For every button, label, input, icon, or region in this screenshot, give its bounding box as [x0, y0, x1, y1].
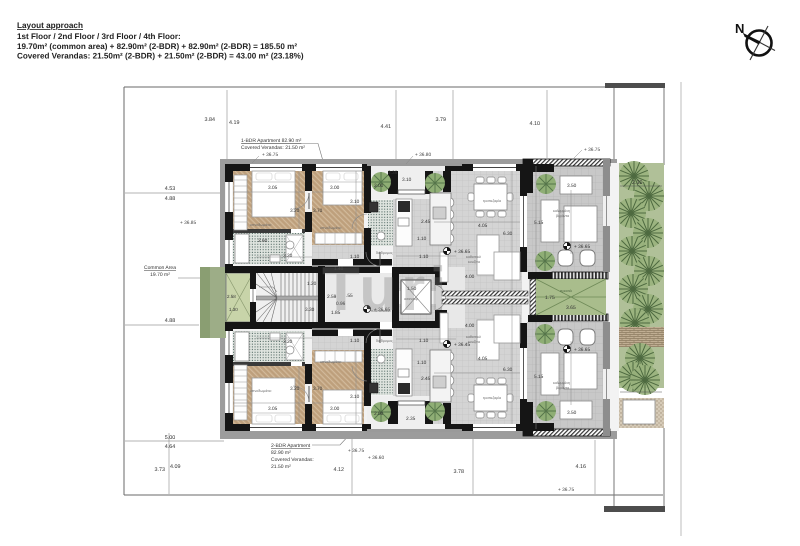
svg-text:Covered Verandas:: Covered Verandas: — [271, 457, 314, 463]
svg-text:2.45: 2.45 — [421, 219, 431, 225]
svg-text:1.10: 1.10 — [417, 360, 427, 366]
svg-text:2.00: 2.00 — [374, 183, 384, 189]
svg-text:3.20: 3.20 — [290, 386, 300, 392]
svg-text:1.10: 1.10 — [419, 338, 429, 344]
svg-text:4.88: 4.88 — [165, 318, 176, 324]
svg-text:3.05: 3.05 — [268, 185, 278, 191]
svg-text:Layout approach: Layout approach — [17, 21, 83, 30]
svg-text:4.05: 4.05 — [478, 356, 488, 362]
svg-text:3.50: 3.50 — [567, 410, 577, 416]
svg-text:+ 36.85: + 36.85 — [180, 220, 196, 226]
svg-text:βεράντα: βεράντα — [556, 386, 569, 390]
svg-text:Turi: Turi — [322, 255, 451, 324]
svg-text:+ 36.80: + 36.80 — [415, 152, 431, 158]
svg-text:1.20: 1.20 — [307, 281, 317, 287]
svg-text:3.10: 3.10 — [350, 199, 360, 205]
svg-text:3.10: 3.10 — [350, 394, 360, 400]
svg-text:2.00: 2.00 — [374, 411, 384, 417]
svg-text:Covered Verandas: 21.50m² (2-B: Covered Verandas: 21.50m² (2-BDR) + 21.5… — [17, 52, 304, 61]
svg-text:3.00: 3.00 — [330, 406, 340, 412]
svg-text:6.30: 6.30 — [503, 367, 513, 373]
svg-text:4.00: 4.00 — [465, 274, 475, 280]
svg-text:1.10: 1.10 — [350, 338, 360, 344]
svg-text:διάδρομος: διάδρομος — [376, 339, 393, 343]
svg-text:5.15: 5.15 — [534, 220, 544, 226]
svg-text:4.00: 4.00 — [465, 323, 475, 329]
svg-text:υπνοδωμάτιο: υπνοδωμάτιο — [250, 389, 271, 393]
svg-text:19.70m² (common area) + 82.90m: 19.70m² (common area) + 82.90m² (2-BDR) … — [17, 42, 297, 51]
svg-text:3.30: 3.30 — [305, 307, 315, 313]
svg-text:Covered Verandas: 21.50 m²: Covered Verandas: 21.50 m² — [241, 145, 305, 151]
svg-text:πρασιά: πρασιά — [560, 289, 572, 293]
svg-text:N: N — [735, 21, 744, 36]
svg-text:5.15: 5.15 — [534, 374, 544, 380]
svg-text:4.09: 4.09 — [170, 464, 181, 470]
svg-text:2.45: 2.45 — [421, 376, 431, 382]
svg-text:4.19: 4.19 — [229, 120, 240, 126]
svg-text:3.10: 3.10 — [402, 177, 412, 183]
svg-text:+ 36.65: + 36.65 — [574, 244, 590, 250]
svg-text:2.60: 2.60 — [258, 238, 268, 244]
svg-text:1.10: 1.10 — [417, 236, 427, 242]
svg-text:6.30: 6.30 — [503, 231, 513, 237]
svg-text:4.16: 4.16 — [576, 464, 587, 470]
svg-text:1st Floor / 2nd Floor / 3rd Fl: 1st Floor / 2nd Floor / 3rd Floor / 4th … — [17, 32, 181, 41]
svg-text:υπνοδωμάτιο: υπνοδωμάτιο — [320, 226, 341, 230]
svg-text:2.35: 2.35 — [406, 416, 416, 422]
svg-text:υπνοδωμάτιο: υπνοδωμάτιο — [320, 360, 341, 364]
svg-text:καλυμμένη: καλυμμένη — [553, 381, 570, 385]
svg-text:4.05: 4.05 — [478, 223, 488, 229]
svg-text:4.41: 4.41 — [381, 124, 392, 130]
svg-text:3.73: 3.73 — [155, 467, 166, 473]
svg-text:κουζίνα: κουζίνα — [468, 340, 480, 344]
svg-text:υπνοδωμάτιο: υπνοδωμάτιο — [250, 223, 271, 227]
svg-text:3.79: 3.79 — [436, 117, 447, 123]
svg-text:5.00: 5.00 — [165, 435, 176, 441]
svg-text:4.12: 4.12 — [334, 467, 345, 473]
svg-text:3.00: 3.00 — [330, 185, 340, 191]
svg-text:κουζίνα: κουζίνα — [468, 260, 480, 264]
svg-text:19.70 m²: 19.70 m² — [150, 272, 170, 278]
svg-text:1-BDR Apartment 82.90 m²: 1-BDR Apartment 82.90 m² — [241, 138, 302, 144]
svg-text:1.30: 1.30 — [229, 307, 238, 312]
svg-text:3.84: 3.84 — [205, 117, 216, 123]
svg-text:1.75: 1.75 — [545, 295, 555, 301]
svg-text:+ 36.75: + 36.75 — [584, 147, 600, 153]
svg-text:4.64: 4.64 — [165, 444, 176, 450]
svg-text:καθιστικό: καθιστικό — [466, 335, 481, 339]
svg-text:βεράντα: βεράντα — [556, 214, 569, 218]
svg-text:21.50 m²: 21.50 m² — [271, 464, 291, 470]
svg-text:3.20: 3.20 — [283, 339, 293, 345]
svg-text:3.20: 3.20 — [283, 253, 293, 259]
svg-text:4.88: 4.88 — [165, 196, 176, 202]
svg-text:3.70: 3.70 — [313, 208, 323, 214]
svg-text:2.58: 2.58 — [227, 294, 236, 299]
svg-text:2-BDR Apartment: 2-BDR Apartment — [271, 443, 311, 449]
svg-text:3.50: 3.50 — [567, 183, 577, 189]
svg-text:τραπεζαρία: τραπεζαρία — [483, 396, 501, 400]
svg-text:3.78: 3.78 — [454, 469, 465, 475]
svg-text:καθιστικό: καθιστικό — [466, 255, 481, 259]
svg-text:+ 36.60: + 36.60 — [368, 455, 384, 461]
svg-text:+ 36.75: + 36.75 — [348, 448, 364, 454]
svg-text:Common Area: Common Area — [144, 265, 176, 271]
svg-text:τραπεζαρία: τραπεζαρία — [483, 199, 501, 203]
svg-text:+ 36.75: + 36.75 — [558, 487, 574, 493]
svg-text:4.53: 4.53 — [165, 186, 176, 192]
svg-text:4.10: 4.10 — [530, 121, 541, 127]
svg-text:2.30: 2.30 — [632, 180, 643, 186]
svg-text:+ 36.75: + 36.75 — [262, 152, 278, 158]
svg-text:καλυμμένη: καλυμμένη — [553, 209, 570, 213]
svg-text:+ 36.65: + 36.65 — [574, 347, 590, 353]
svg-text:82.90 m²: 82.90 m² — [271, 450, 291, 456]
svg-text:3.70: 3.70 — [313, 386, 323, 392]
svg-text:3.65: 3.65 — [566, 305, 576, 311]
svg-text:2.36: 2.36 — [388, 170, 398, 176]
svg-text:3.20: 3.20 — [290, 208, 300, 214]
svg-text:3.05: 3.05 — [268, 406, 278, 412]
